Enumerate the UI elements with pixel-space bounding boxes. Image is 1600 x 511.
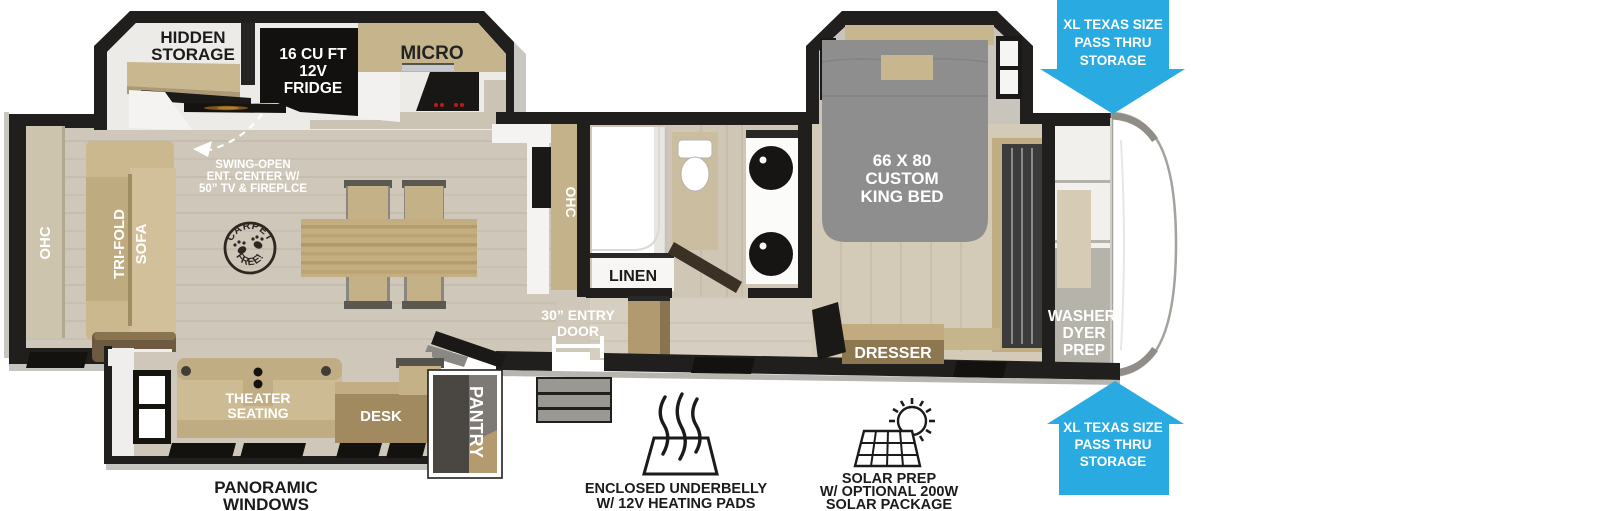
svg-text:FRIDGE: FRIDGE [284,80,343,97]
svg-text:STORAGE: STORAGE [151,45,235,64]
svg-text:ENT. CENTER W/: ENT. CENTER W/ [207,171,300,183]
svg-text:XL TEXAS SIZE: XL TEXAS SIZE [1063,17,1163,32]
svg-text:WASHER/: WASHER/ [1048,308,1121,325]
svg-text:CUSTOM: CUSTOM [865,169,938,188]
svg-text:OHC: OHC [37,226,54,260]
svg-text:SEATING: SEATING [227,405,288,421]
svg-text:WINDOWS: WINDOWS [223,495,309,511]
svg-text:MICRO: MICRO [400,43,463,64]
svg-text:PREP: PREP [1063,342,1105,359]
svg-text:OHC: OHC [563,186,579,217]
svg-text:ENCLOSED UNDERBELLY: ENCLOSED UNDERBELLY [585,481,768,497]
svg-text:16 CU FT: 16 CU FT [279,46,347,63]
svg-text:50” TV & FIREPLCE: 50” TV & FIREPLCE [199,183,307,195]
svg-text:DESK: DESK [360,408,402,425]
svg-text:DOOR: DOOR [557,323,599,339]
svg-text:PANTRY: PANTRY [466,386,486,458]
svg-text:PASS THRU: PASS THRU [1074,35,1151,50]
svg-text:W/ 12V HEATING PADS: W/ 12V HEATING PADS [597,496,756,511]
svg-text:SOLAR PACKAGE: SOLAR PACKAGE [826,497,953,511]
svg-text:DYER: DYER [1062,325,1105,342]
svg-text:STORAGE: STORAGE [1080,53,1147,68]
svg-text:THEATER: THEATER [225,390,290,406]
svg-text:TRI-FOLD: TRI-FOLD [111,209,128,279]
svg-text:KING BED: KING BED [860,187,943,206]
svg-text:12V: 12V [299,63,327,80]
svg-text:SOFA: SOFA [133,223,150,264]
svg-text:66 X 80: 66 X 80 [873,151,932,170]
svg-text:30” ENTRY: 30” ENTRY [541,307,615,323]
svg-text:LINEN: LINEN [609,268,657,285]
svg-text:STORAGE: STORAGE [1080,454,1147,469]
svg-text:PASS THRU: PASS THRU [1074,437,1151,452]
svg-text:SWING-OPEN: SWING-OPEN [215,159,290,171]
svg-text:DRESSER: DRESSER [854,345,932,362]
svg-text:XL TEXAS SIZE: XL TEXAS SIZE [1063,420,1163,435]
